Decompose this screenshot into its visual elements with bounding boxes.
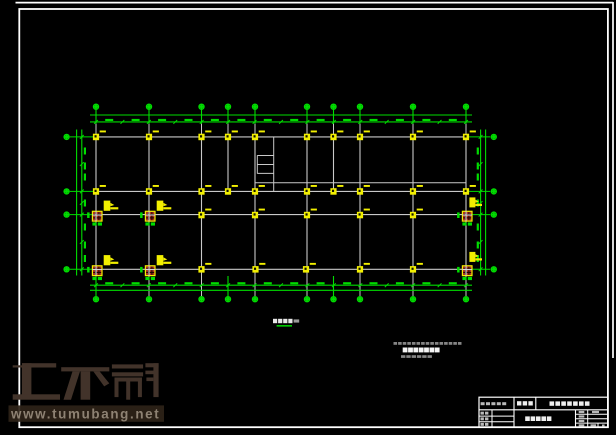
svg-text:www.tumubang.net: www.tumubang.net [10, 407, 160, 422]
